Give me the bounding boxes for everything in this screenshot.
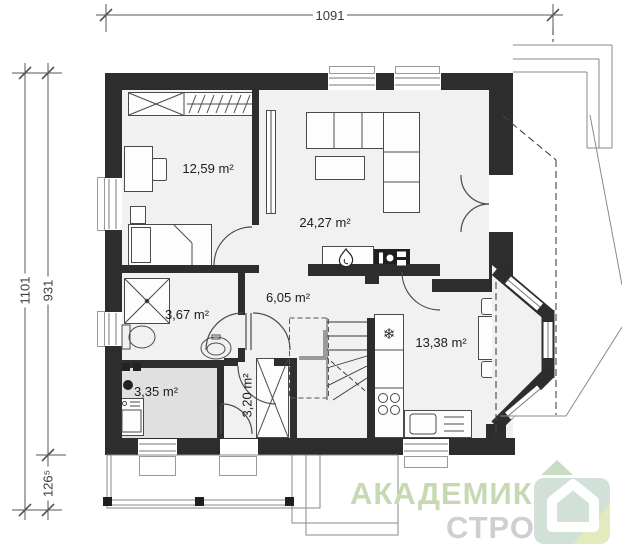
entry-stoop <box>139 456 176 476</box>
window-sill <box>97 177 105 231</box>
kitchen-sink-unit <box>404 410 472 438</box>
window-kitchen-bottom <box>403 439 449 455</box>
wall-top <box>105 73 513 90</box>
wall-right-upper <box>489 73 513 175</box>
logo-fold <box>573 504 610 544</box>
wall-entry-right <box>290 358 297 438</box>
wall-right-mid <box>489 232 513 279</box>
window-living-top-2 <box>394 73 441 90</box>
wall-bathroom-right-upper <box>238 273 245 315</box>
dim-tick <box>100 9 112 21</box>
wall-fireplace <box>308 264 440 276</box>
dim-tick <box>42 67 54 79</box>
room-label-bedroom: 12,59 m² <box>178 161 238 176</box>
logo-text-line1: АКАДЕМИК <box>350 476 533 512</box>
desk-chair <box>152 158 167 181</box>
logo-roof-peak <box>541 460 573 475</box>
wall-hall-entry-a <box>224 358 238 366</box>
dim-label-left-outer: 1101 <box>18 261 33 321</box>
wall-bedroom-bottom <box>112 265 259 273</box>
front-door-opening <box>220 439 258 455</box>
floor-plan: ❄ <box>0 0 622 548</box>
dining-chair <box>506 298 525 315</box>
wall-bedroom-living <box>252 90 259 225</box>
window-sill <box>395 66 440 74</box>
dining-chair <box>506 361 525 378</box>
dim-label-left-inner: 931 <box>41 261 56 321</box>
french-door-opening <box>489 175 513 232</box>
window-bedroom-left <box>104 178 122 230</box>
room-label-boiler: 3,35 m² <box>128 384 184 399</box>
room-label-bathroom: 3,67 m² <box>157 307 217 322</box>
wall-bathroom-bottom <box>112 360 224 368</box>
dining-chair <box>481 298 500 315</box>
wall-fireplace-stub <box>365 276 379 284</box>
room-label-entry: 3,20 m² <box>240 358 255 434</box>
wall-stairs-kitchen <box>367 318 375 438</box>
entry-stoop <box>219 456 257 476</box>
kitchen-window-sill <box>404 456 448 468</box>
desk <box>124 146 153 192</box>
window-living-top-1 <box>328 73 376 90</box>
porch-post <box>285 497 294 506</box>
bed-pillow <box>131 227 151 263</box>
window-sill <box>329 66 375 74</box>
dim-tick <box>547 9 559 21</box>
terrace-diagonal <box>590 115 622 285</box>
window-boiler-bottom <box>138 439 177 455</box>
boiler-unit <box>119 398 144 436</box>
coffee-table <box>315 156 365 180</box>
wall-entry-left <box>217 360 224 438</box>
room-label-hall: 6,05 m² <box>258 290 318 305</box>
window-bathroom-left <box>104 312 122 346</box>
dim-label-top: 1091 <box>300 8 360 23</box>
nightstand <box>130 206 146 224</box>
porch-post <box>195 497 204 506</box>
window-sill <box>97 311 105 347</box>
dim-tick <box>19 67 31 79</box>
wardrobe-entry <box>256 358 289 438</box>
dining-table <box>478 316 532 360</box>
logo-text-line2: СТРОЙ <box>446 510 558 546</box>
kitchen-counter <box>374 314 404 438</box>
logo-house-outline <box>552 484 594 527</box>
terrace-diagonal <box>566 327 622 416</box>
sofa-vertical <box>383 112 420 213</box>
room-label-kitchen: 13,38 m² <box>411 335 471 350</box>
dim-tick <box>19 504 31 516</box>
wall-kitchen-top <box>432 279 492 292</box>
wall-left <box>105 73 122 455</box>
porch-post <box>103 497 112 506</box>
dining-chair <box>481 361 500 378</box>
wardrobe-bedroom <box>128 92 254 116</box>
tv-bench <box>266 110 276 214</box>
room-label-living: 24,27 m² <box>295 215 355 230</box>
dim-label-left-bottom: 126⁵ <box>41 454 56 514</box>
